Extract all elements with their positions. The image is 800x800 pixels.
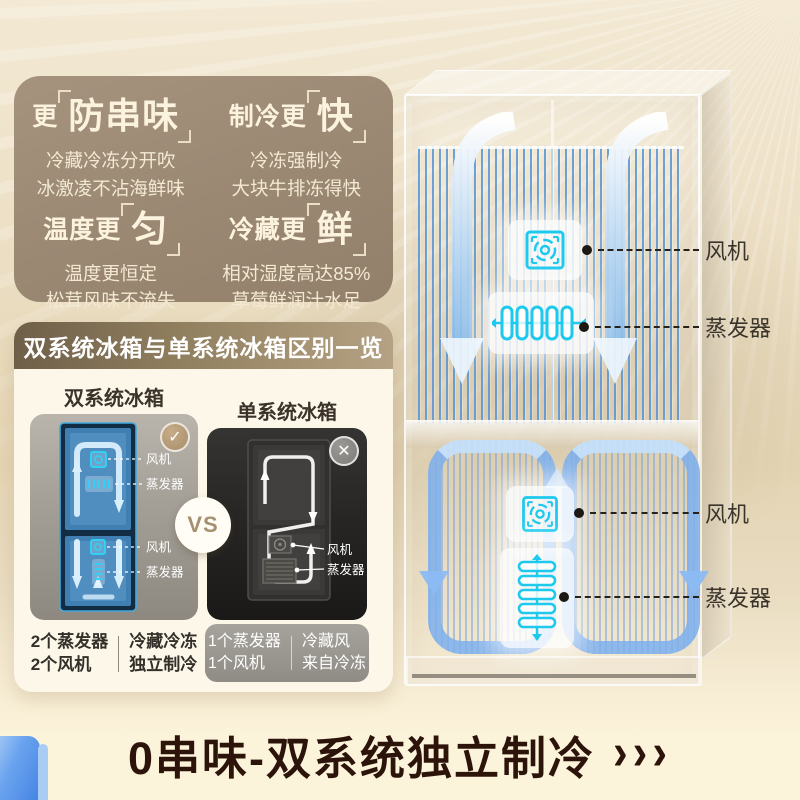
feature-description: 冷藏冷冻分开吹 冰激凌不沾海鲜味 [37, 147, 185, 203]
callout-dot [582, 245, 592, 255]
up-arrow-icon [545, 468, 569, 488]
feature-freshness: 冷藏更 鲜 相对湿度高达85% 草莓鲜润汁水足 [204, 203, 390, 316]
feature-title: 更 防串味 [32, 90, 189, 140]
check-icon: ✓ [160, 422, 190, 452]
feature-description: 温度更恒定 松茸风味不流失 [46, 260, 176, 316]
callout-line [575, 596, 699, 598]
feature-description: 相对湿度高达85% 草莓鲜润汁水足 [222, 260, 370, 316]
feature-description: 冷冻强制冷 大块牛排冻得快 [231, 147, 361, 203]
chevron-right-icons: ››› [613, 723, 672, 785]
callout-line [598, 249, 699, 251]
footer-headline: 0串味-双系统独立制冷 ››› [0, 722, 800, 787]
feature-title: 制冷更 快 [229, 90, 364, 140]
feature-anti-odor: 更 防串味 冷藏冷冻分开吹 冰激凌不沾海鲜味 [18, 90, 204, 203]
fridge-top-face [404, 70, 732, 95]
comparison-card: 双系统冰箱与单系统冰箱区别一览 双系统冰箱 单系统冰箱 [14, 322, 393, 692]
fan-label: 风机 [146, 453, 172, 467]
single-system-specs: 1个蒸发器 1个风机 冷藏风 来自冷冻 [205, 624, 369, 682]
spec-group: 2个蒸发器 2个风机 [31, 631, 108, 677]
fan-label: 风机 [705, 234, 749, 266]
fan-label: 风机 [705, 497, 749, 529]
feature-highlight: 快 [307, 90, 364, 140]
callout-bottom-evaporator: 蒸发器 [559, 583, 771, 611]
dual-system-specs: 2个蒸发器 2个风机 冷藏冷冻 独立制冷 [28, 626, 200, 682]
product-detail-page: 更 防串味 冷藏冷冻分开吹 冰激凌不沾海鲜味 制冷更 快 冷冻强制冷 大块牛排冻… [0, 0, 800, 800]
headline-text: 0串味-双系统独立制冷 [128, 722, 595, 787]
spec-group: 冷藏风 来自冷冻 [302, 631, 366, 674]
feature-highlight: 鲜 [307, 203, 364, 253]
down-arrow-icon [419, 571, 449, 595]
callout-top-evaporator: 蒸发器 [579, 313, 771, 341]
comparison-header: 双系统冰箱与单系统冰箱区别一览 [14, 322, 393, 369]
feature-prefix: 温度更 [43, 210, 121, 253]
spec-group: 冷藏冷冻 独立制冷 [129, 631, 197, 677]
evaporator-icon [92, 559, 105, 585]
feature-prefix: 制冷更 [229, 97, 307, 140]
fan-icon [91, 540, 105, 554]
cross-icon: ✕ [329, 436, 359, 466]
feature-prefix: 更 [32, 97, 58, 140]
evaporator-label: 蒸发器 [327, 562, 365, 577]
callout-dot [559, 592, 569, 602]
vs-badge: VS [175, 497, 231, 553]
callout-line [595, 326, 699, 328]
fan-icon [91, 452, 106, 467]
callout-dot [574, 508, 584, 518]
feature-even-temp: 温度更 匀 温度更恒定 松茸风味不流失 [18, 203, 204, 316]
evaporator-label: 蒸发器 [705, 311, 771, 343]
divider [118, 636, 119, 672]
single-system-title: 单系统冰箱 [207, 396, 367, 425]
dual-system-diagram: 风机 蒸发器 风机 蒸发器 ✓ [30, 414, 198, 620]
feature-prefix: 冷藏更 [229, 210, 307, 253]
single-system-diagram: 风机 蒸发器 ✕ [207, 428, 367, 620]
callout-top-fan: 风机 [582, 236, 749, 264]
callout-dot [579, 322, 589, 332]
airflow-loop [562, 440, 700, 654]
fan-label: 风机 [327, 543, 353, 557]
down-arrow-ribbon [585, 112, 675, 432]
feature-panel: 更 防串味 冷藏冷冻分开吹 冰激凌不沾海鲜味 制冷更 快 冷冻强制冷 大块牛排冻… [14, 76, 393, 302]
feature-highlight: 匀 [121, 203, 178, 253]
fan-icon [508, 220, 582, 280]
fan-label: 风机 [146, 541, 172, 555]
evaporator-label: 蒸发器 [705, 581, 771, 613]
feature-title: 温度更 匀 [43, 203, 178, 253]
callout-line [590, 512, 699, 514]
feature-highlight: 防串味 [58, 90, 189, 140]
evaporator-label: 蒸发器 [146, 565, 184, 580]
evaporator-label: 蒸发器 [146, 477, 184, 492]
spec-group: 1个蒸发器 1个风机 [208, 631, 281, 674]
feature-title: 冷藏更 鲜 [229, 203, 364, 253]
dual-system-title: 双系统冰箱 [30, 382, 198, 411]
fan-icon [506, 486, 574, 542]
divider [291, 636, 292, 670]
callout-bottom-fan: 风机 [574, 499, 749, 527]
feature-fast-cooling: 制冷更 快 冷冻强制冷 大块牛排冻得快 [204, 90, 390, 203]
fridge-base [406, 656, 702, 686]
